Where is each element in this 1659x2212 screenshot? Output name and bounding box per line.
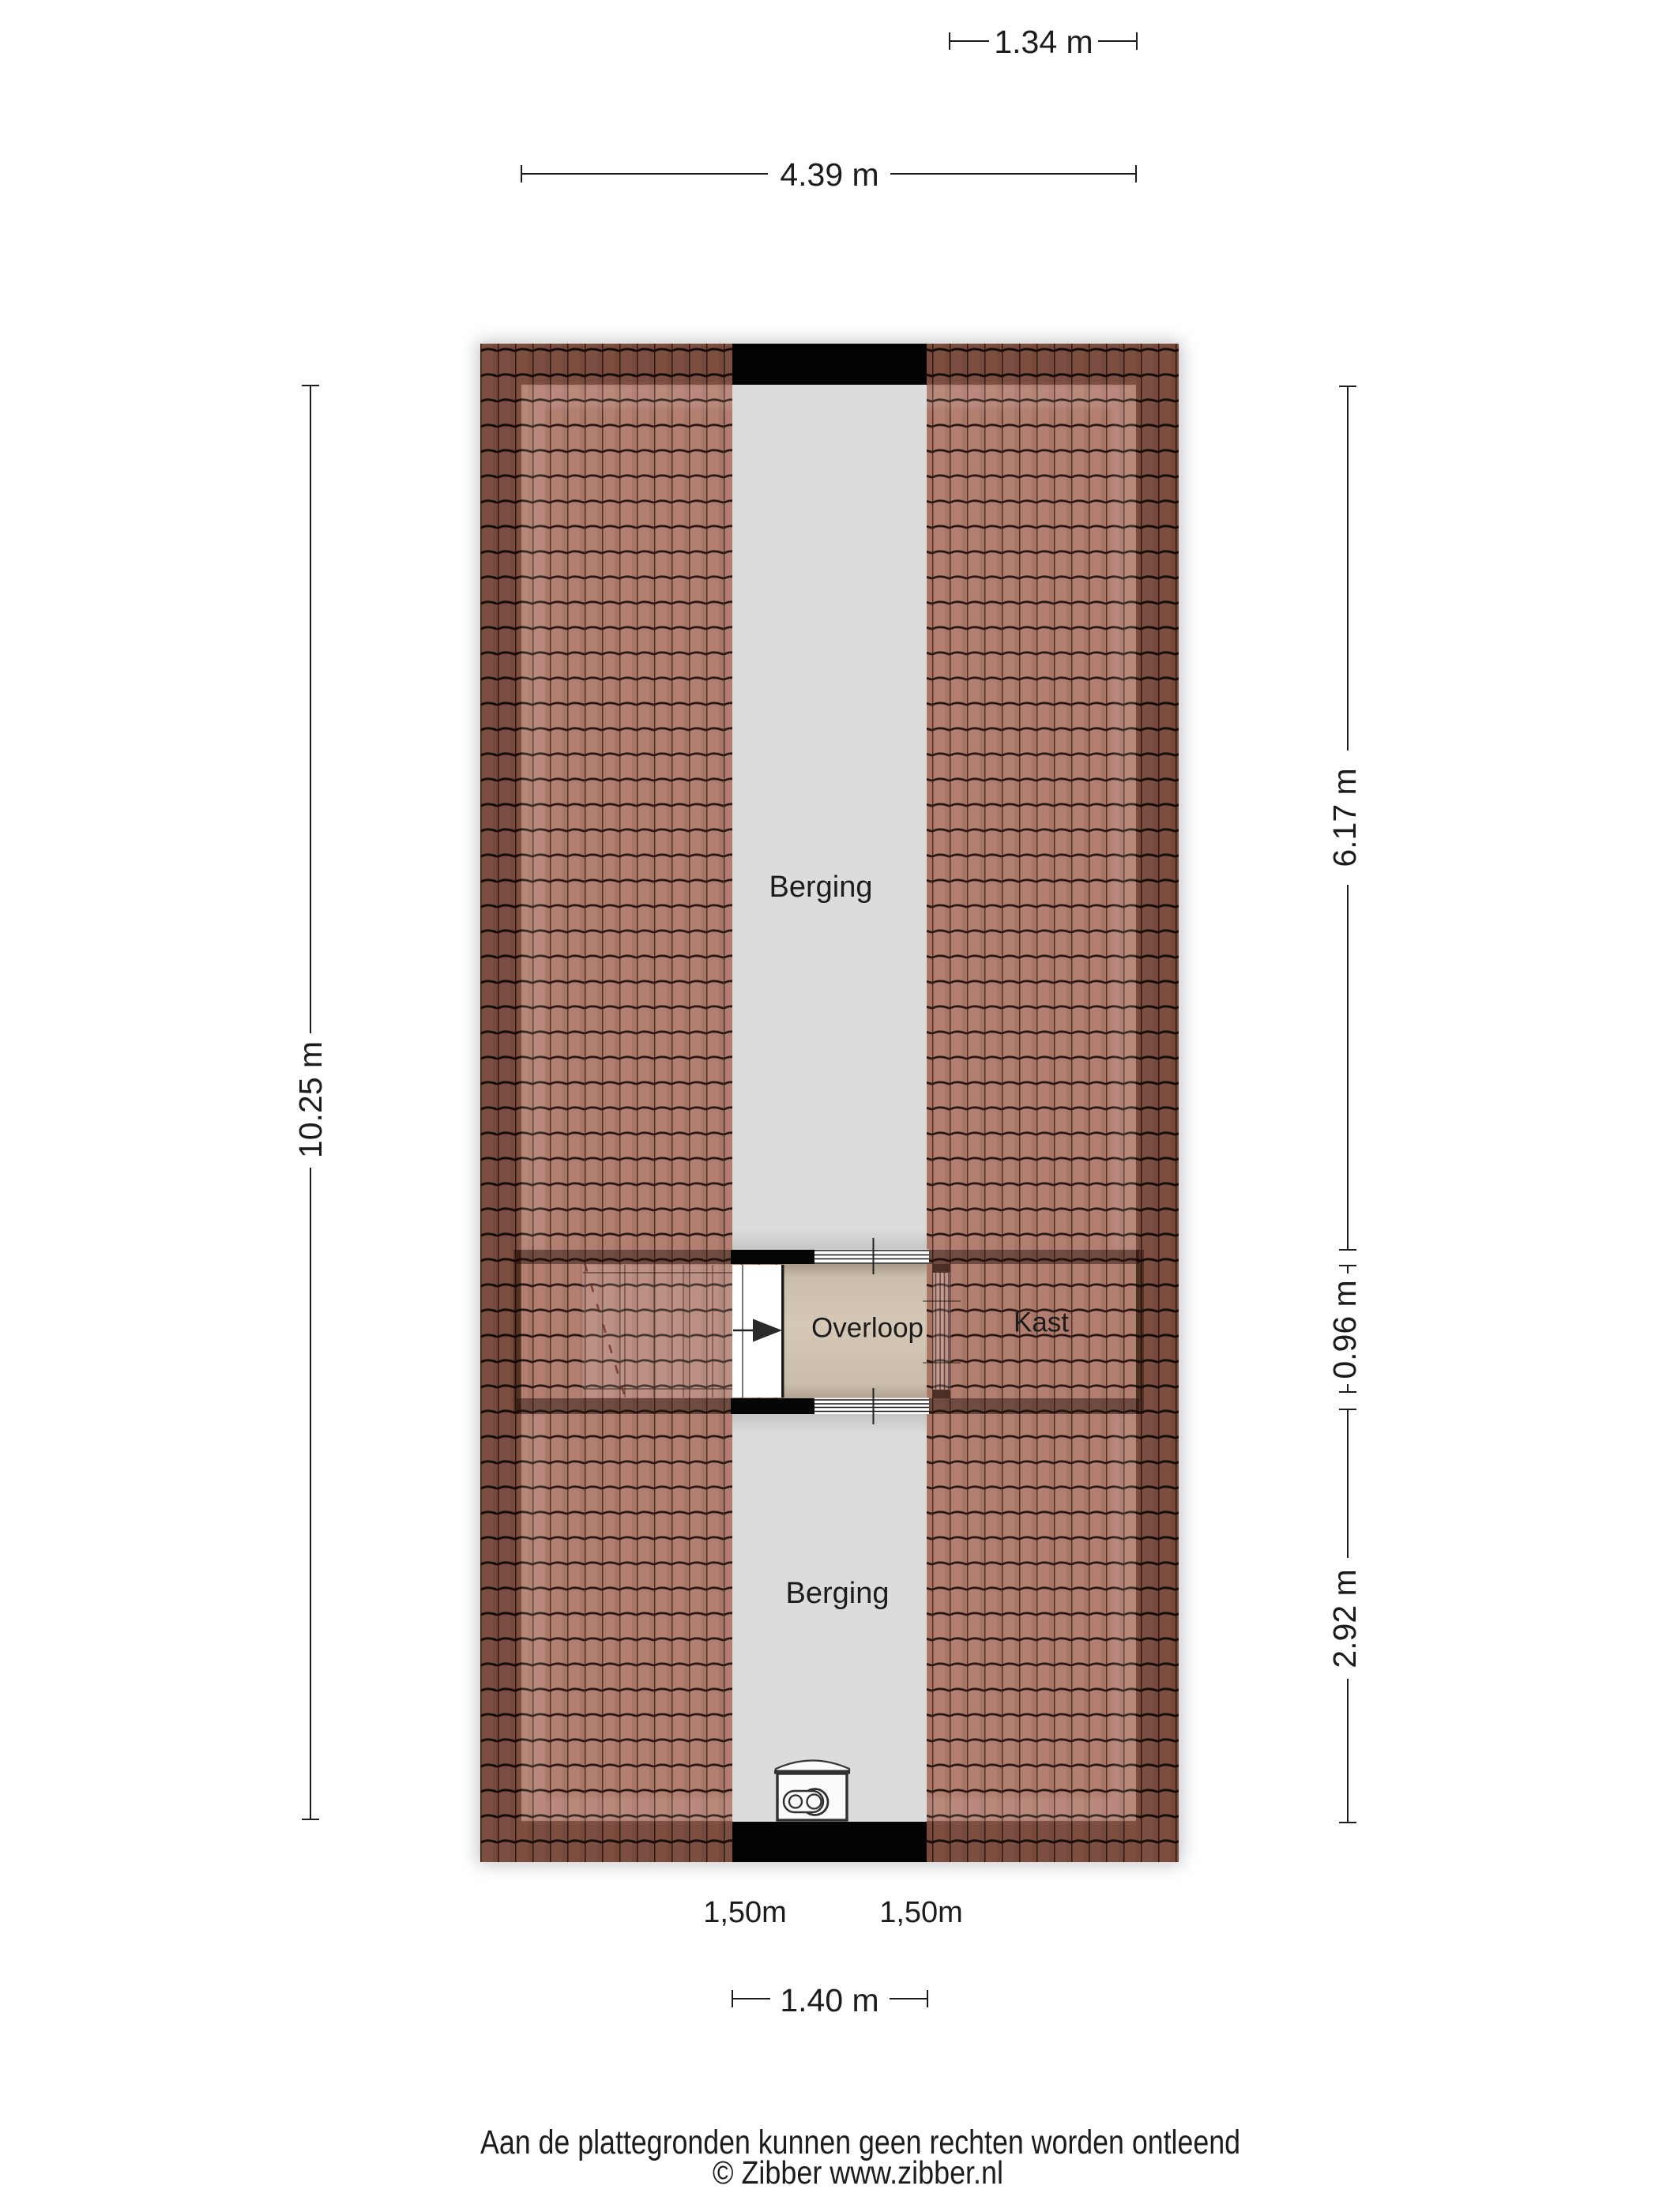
svg-text:2.92 m: 2.92 m: [1326, 1569, 1363, 1668]
svg-text:1.34 m: 1.34 m: [994, 24, 1093, 60]
svg-text:0.96 m: 0.96 m: [1326, 1280, 1363, 1379]
svg-text:1.40 m: 1.40 m: [780, 1982, 878, 2018]
svg-text:Kast: Kast: [1014, 1307, 1069, 1338]
svg-text:6.17 m: 6.17 m: [1326, 768, 1363, 867]
svg-text:1,50m: 1,50m: [703, 1896, 787, 1929]
svg-text:© Zibber www.zibber.nl: © Zibber www.zibber.nl: [713, 2154, 1003, 2191]
svg-text:4.39 m: 4.39 m: [780, 156, 878, 193]
svg-text:Berging: Berging: [769, 871, 873, 904]
svg-text:10.25 m: 10.25 m: [292, 1041, 329, 1158]
svg-text:Berging: Berging: [786, 1577, 890, 1610]
svg-text:1,50m: 1,50m: [879, 1896, 963, 1929]
svg-text:Overloop: Overloop: [811, 1313, 924, 1344]
